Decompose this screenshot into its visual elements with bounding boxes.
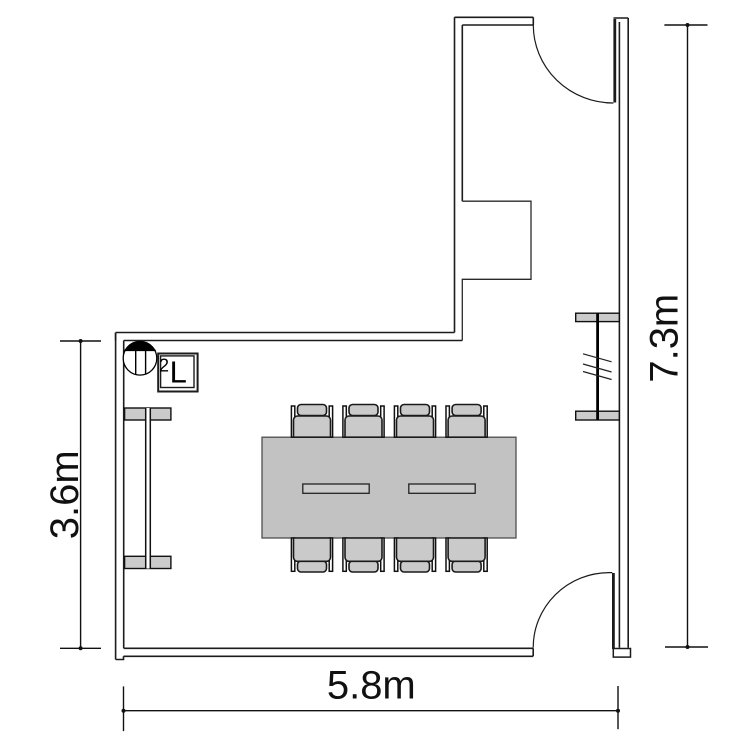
svg-text:7.3m: 7.3m xyxy=(643,294,687,383)
svg-text:L: L xyxy=(170,355,187,390)
svg-text:3.6m: 3.6m xyxy=(43,450,87,539)
svg-text:5.8m: 5.8m xyxy=(327,664,416,708)
svg-text:2: 2 xyxy=(159,355,169,375)
